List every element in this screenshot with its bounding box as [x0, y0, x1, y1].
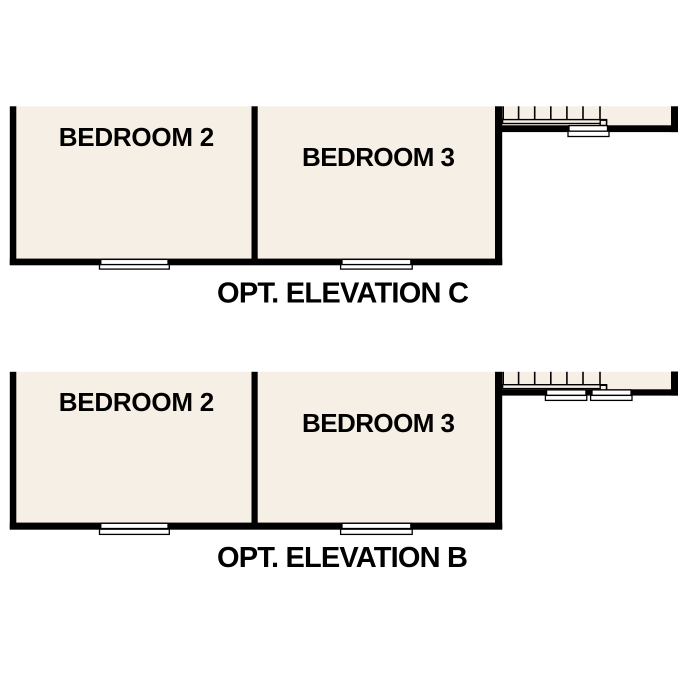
svg-text:OPT. ELEVATION B: OPT. ELEVATION B [217, 542, 468, 574]
svg-text:BEDROOM 3: BEDROOM 3 [302, 408, 455, 438]
svg-text:BEDROOM 2: BEDROOM 2 [59, 122, 215, 152]
svg-text:OPT. ELEVATION C: OPT. ELEVATION C [217, 277, 469, 309]
svg-text:BEDROOM 3: BEDROOM 3 [302, 142, 455, 172]
svg-text:BEDROOM 2: BEDROOM 2 [59, 387, 215, 417]
